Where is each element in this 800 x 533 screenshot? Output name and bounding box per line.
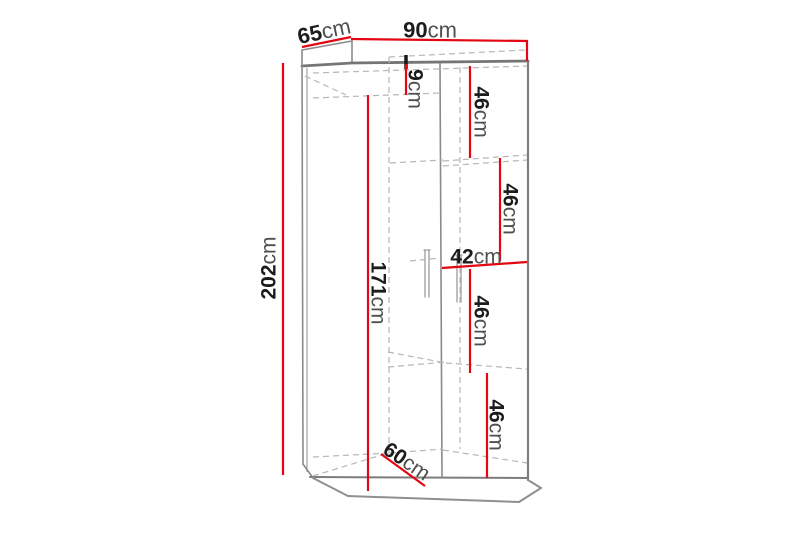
shelf-1-dashed bbox=[390, 160, 443, 163]
ceiling-back-dashed bbox=[389, 50, 525, 57]
label-46cm-3: 46cm bbox=[470, 295, 493, 346]
label-90cm-value: 90 bbox=[403, 18, 427, 43]
shelf-1-thickness-dashed bbox=[443, 160, 527, 166]
label-202cm-value: 202 bbox=[257, 264, 280, 299]
base-right-slant-edge bbox=[519, 488, 541, 502]
label-202cm-unit: cm bbox=[257, 236, 280, 264]
diagram-canvas: 90cm 65cm 202cm 9cm 46cm 46cm 42cm 46cm … bbox=[0, 0, 800, 533]
label-90cm-unit: cm bbox=[428, 18, 457, 43]
shelf-3-dashed bbox=[388, 352, 446, 363]
label-46cm-4-unit: cm bbox=[485, 423, 508, 451]
base-left-slant-edge bbox=[313, 478, 348, 496]
center-partition-edge bbox=[440, 63, 442, 477]
label-9cm-value: 9 bbox=[404, 69, 427, 81]
label-46cm-1: 46cm bbox=[470, 86, 493, 137]
label-46cm-4: 46cm bbox=[485, 399, 508, 450]
label-42cm-unit: cm bbox=[474, 245, 502, 268]
label-171cm-unit: cm bbox=[367, 297, 390, 325]
label-42cm: 42cm bbox=[450, 245, 501, 268]
wardrobe-dimension-diagram: 90cm 65cm 202cm 9cm 46cm 46cm 42cm 46cm … bbox=[0, 0, 800, 533]
label-65cm-unit: cm bbox=[319, 13, 353, 44]
shelf-1-dashed bbox=[443, 155, 527, 161]
label-42cm-value: 42 bbox=[450, 245, 473, 268]
base-bottom-edge bbox=[348, 496, 519, 502]
ceiling-left-diagonal-dashed bbox=[305, 76, 346, 95]
top-front-edge bbox=[302, 61, 528, 66]
label-202cm: 202cm bbox=[257, 236, 280, 299]
label-171cm: 171cm bbox=[367, 261, 390, 324]
label-171cm-value: 171 bbox=[367, 261, 390, 296]
shelf-3-dashed bbox=[446, 363, 527, 369]
label-46cm-2-value: 46 bbox=[499, 183, 522, 206]
label-46cm-1-value: 46 bbox=[470, 86, 493, 109]
label-46cm-4-value: 46 bbox=[485, 399, 508, 422]
label-46cm-3-value: 46 bbox=[470, 295, 493, 318]
left-bottom-corner-edge bbox=[303, 464, 313, 478]
base-right-corner-edge bbox=[528, 480, 541, 488]
label-65cm: 65cm bbox=[295, 13, 353, 49]
label-46cm-2-unit: cm bbox=[499, 207, 522, 235]
label-46cm-2: 46cm bbox=[499, 183, 522, 234]
floor-dashed bbox=[443, 450, 527, 463]
label-90cm: 90cm bbox=[403, 18, 457, 43]
label-46cm-1-unit: cm bbox=[470, 110, 493, 138]
label-46cm-3-unit: cm bbox=[470, 319, 493, 347]
left-outer-edge bbox=[302, 50, 303, 464]
label-9cm-unit: cm bbox=[404, 81, 427, 109]
shelf-3-dashed bbox=[388, 362, 446, 367]
label-9cm: 9cm bbox=[404, 69, 427, 109]
